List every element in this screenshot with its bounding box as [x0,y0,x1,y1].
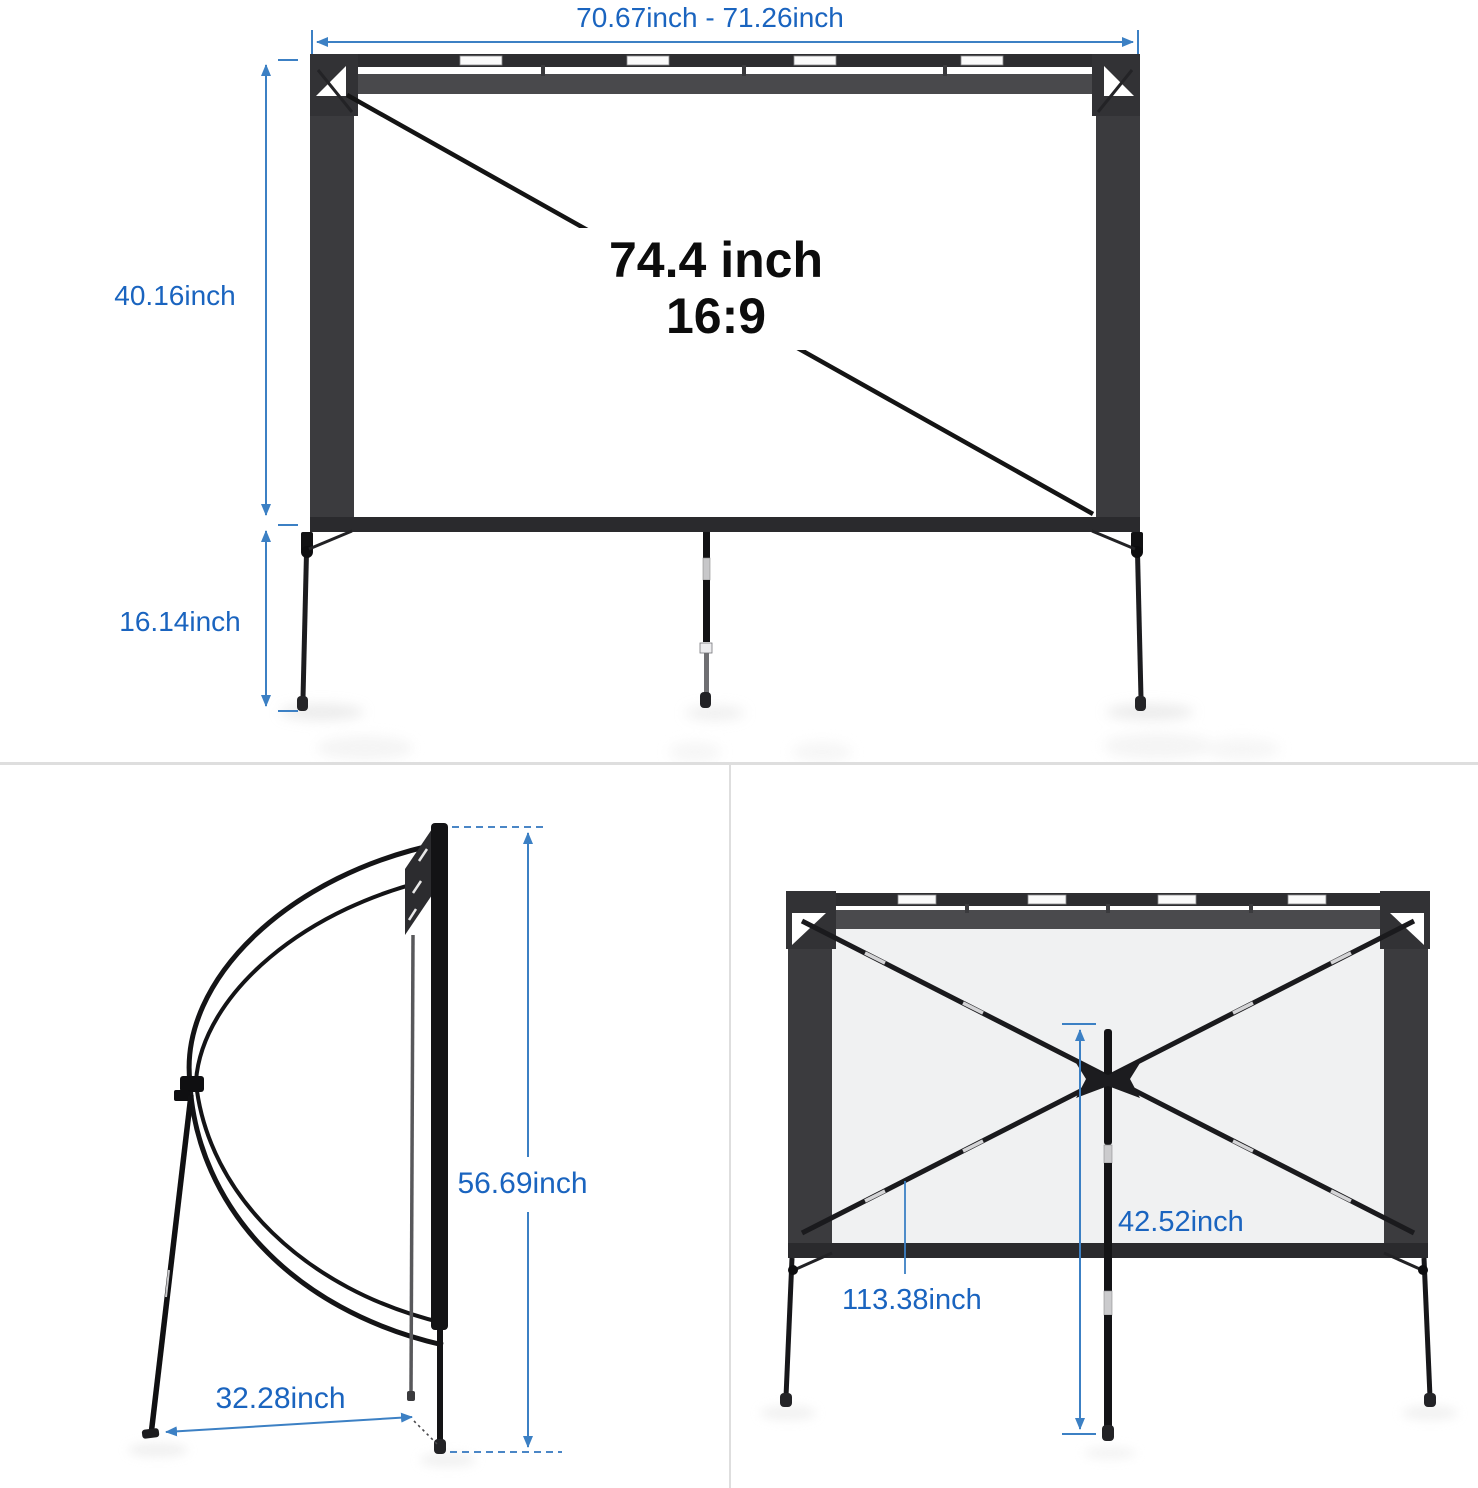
ground-shadows [280,704,1280,762]
side-height-dimension [450,827,562,1452]
side-height-label: 56.69inch [455,1167,590,1201]
back-view-drawing [730,765,1478,1488]
back-view-panel: 42.52inch 113.38inch [730,765,1478,1488]
screen-height-dimension [266,60,298,711]
front-screen-height-label: 40.16inch [95,280,255,312]
front-view-drawing [0,0,1478,762]
side-arcs [189,843,443,1345]
front-legs [297,531,1146,711]
front-width-label: 70.67inch - 71.26inch [490,2,930,34]
front-stand-height-label: 16.14inch [100,606,260,638]
front-center-pole [700,532,712,708]
back-pole-length-label: 113.38inch [842,1284,982,1317]
front-aspect-label: 16:9 [555,288,877,344]
side-view-panel: 56.69inch 32.28inch [0,765,729,1488]
slanted-front-leg [151,1095,191,1435]
top-width-dimension [312,30,1138,57]
front-diagonal-label: 74.4 inch [555,232,877,288]
ground-shadows [128,1443,476,1467]
projector-screen-dimension-diagram: 70.67inch - 71.26inch 40.16inch 16.14inc… [0,0,1478,1488]
front-view-panel: 70.67inch - 71.26inch 40.16inch 16.14inc… [0,0,1478,762]
rear-pole [411,935,413,1393]
diagonal-size-callout: 74.4 inch 16:9 [555,228,877,350]
side-depth-dimension [166,1417,439,1446]
side-view-drawing [0,765,729,1488]
back-center-height-label: 42.52inch [1118,1206,1244,1239]
side-frame [405,823,448,1401]
side-depth-label: 32.28inch [198,1382,363,1416]
